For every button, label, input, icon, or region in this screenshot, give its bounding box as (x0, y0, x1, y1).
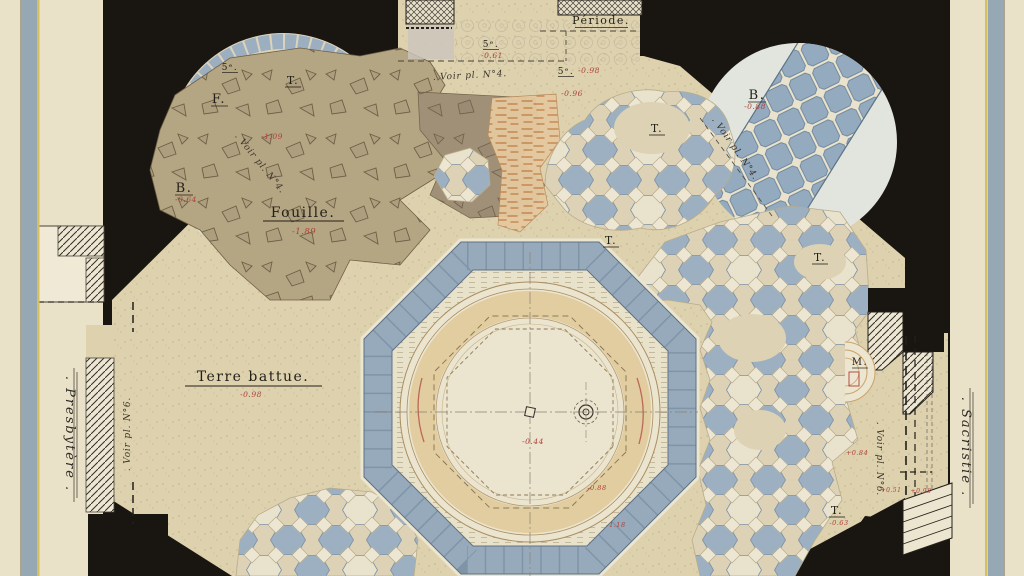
label-t-5: T. (831, 504, 843, 517)
level-b-left: -0.64 (175, 195, 197, 204)
label-t-apse: T. (287, 74, 299, 87)
label-periode: Période. (572, 14, 630, 27)
level-five-top: -0.61 (481, 51, 503, 60)
label-five-2: 5ᵉ. (483, 40, 500, 50)
level-five-mid: -0.96 (561, 89, 583, 98)
label-t-2: T. (651, 122, 663, 135)
label-b-right: B. (749, 88, 766, 103)
level-t-bottom: -0.63 (829, 519, 848, 527)
label-five-1: 5ᵉ. (222, 63, 239, 73)
level-five-right: -0.98 (578, 66, 600, 75)
level-niche: +0.84 (846, 449, 868, 457)
label-b-left: B. (176, 181, 193, 196)
right-frame-band (988, 0, 1003, 576)
level-step-1: +0.51 (881, 487, 902, 494)
level-step-2: +0.98 (911, 488, 932, 495)
level-basin: -0.44 (522, 437, 544, 446)
title-presbytere: . Presbytère . (62, 376, 77, 492)
label-m: M. (852, 357, 868, 368)
left-frame-band (22, 0, 37, 576)
center-mark (525, 407, 536, 418)
label-f: F. (212, 92, 226, 107)
level-basin-se1: -0.88 (587, 484, 606, 492)
label-fouille: Fouille. (271, 205, 336, 221)
note-voir6-left: . Voir pl. N°6. (123, 397, 133, 471)
label-five-3: 5ᵉ. (558, 67, 575, 77)
label-t-4: T. (814, 251, 826, 264)
label-terre-battue: Terre battue. (197, 369, 309, 385)
plan-drawing: Période. Fouille. Terre battue. F. T. B.… (0, 0, 1024, 576)
level-apse-left: -1.09 (261, 132, 283, 141)
level-fouille: -1.89 (292, 227, 316, 237)
level-b-right: -0.88 (744, 102, 766, 111)
title-sacristie: . Sacristie . (958, 397, 973, 498)
level-terre: -0.98 (240, 390, 262, 399)
level-basin-se2: -1.18 (606, 521, 625, 529)
label-t-3: T. (605, 234, 617, 247)
drawing-sheet: Période. Fouille. Terre battue. F. T. B.… (0, 0, 1024, 576)
left-corridor (86, 325, 114, 359)
note-voir6-right: . Voir pl. N°6. (874, 422, 884, 496)
